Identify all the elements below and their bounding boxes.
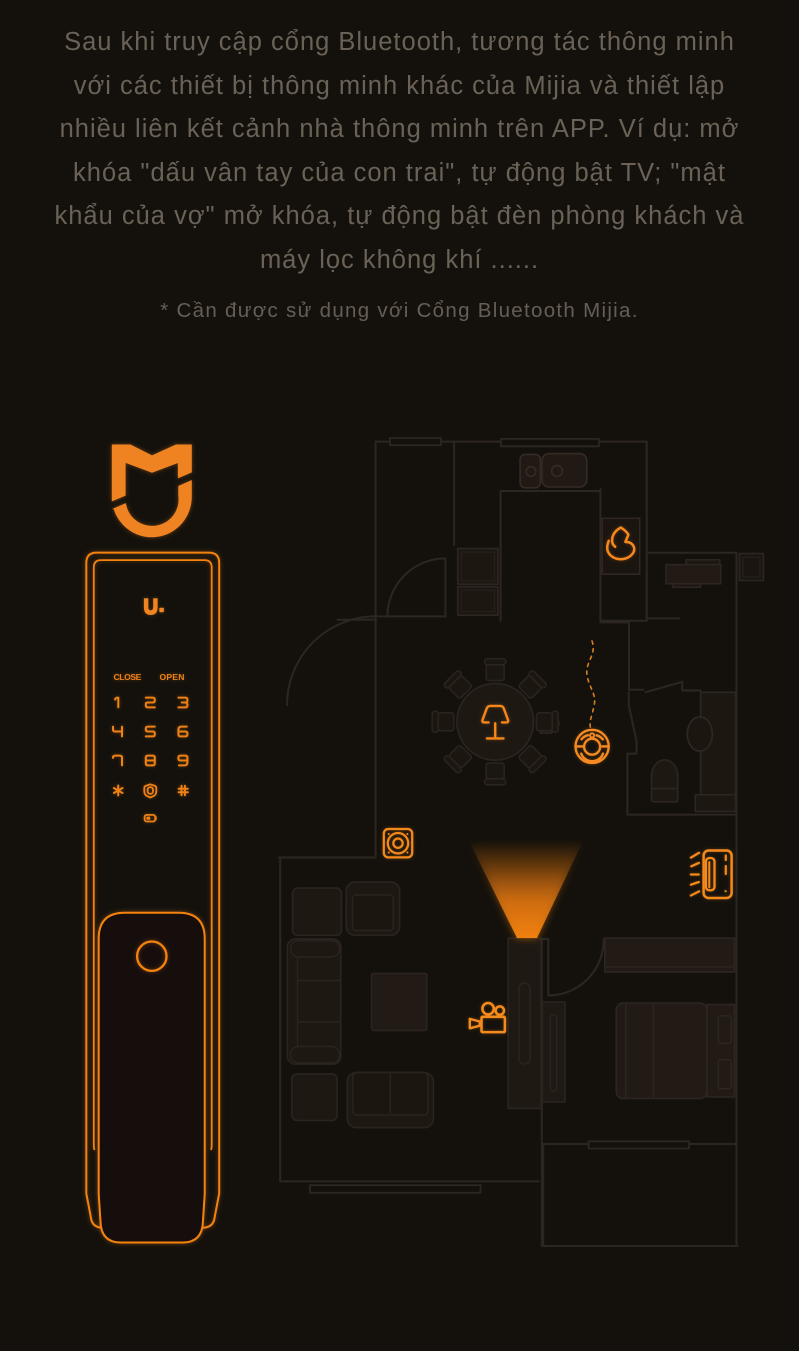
svg-text:CLOSE: CLOSE [114, 672, 143, 682]
svg-text:OPEN: OPEN [160, 672, 186, 682]
